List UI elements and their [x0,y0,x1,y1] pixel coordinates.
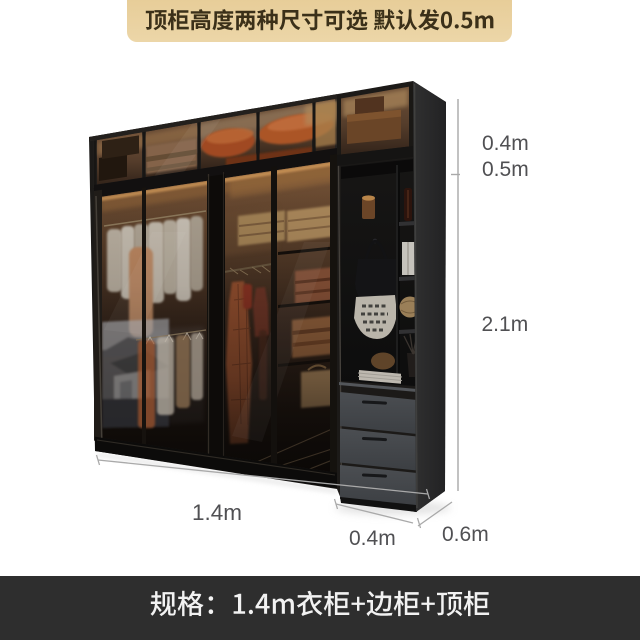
svg-text:0.5m: 0.5m [482,158,529,181]
svg-text:0.4m: 0.4m [482,132,529,155]
svg-text:0.4m: 0.4m [349,527,396,550]
svg-text:1.4m: 1.4m [192,500,242,525]
svg-text:2.1m: 2.1m [482,313,529,336]
svg-text:0.6m: 0.6m [442,523,489,546]
